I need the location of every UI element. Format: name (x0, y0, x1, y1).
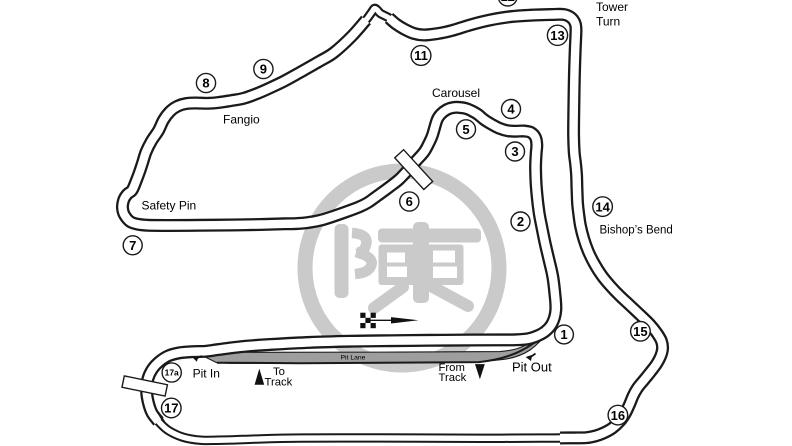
svg-text:8: 8 (202, 76, 209, 91)
svg-text:Pit Lane: Pit Lane (341, 355, 366, 362)
svg-text:17a: 17a (165, 368, 179, 378)
svg-text:16: 16 (611, 408, 625, 423)
svg-text:17: 17 (164, 401, 178, 416)
svg-text:Carousel: Carousel (432, 86, 480, 100)
svg-text:4: 4 (507, 102, 515, 117)
svg-text:Pit Out: Pit Out (512, 360, 552, 375)
svg-text:Bishop’s Bend: Bishop’s Bend (600, 225, 673, 237)
svg-text:5: 5 (462, 122, 469, 137)
svg-text:2: 2 (517, 214, 524, 229)
svg-text:7: 7 (129, 238, 136, 253)
svg-text:12: 12 (500, 0, 514, 4)
svg-text:13: 13 (550, 28, 564, 43)
svg-text:9: 9 (260, 62, 267, 77)
svg-text:15: 15 (633, 324, 647, 339)
svg-text:Safety Pin: Safety Pin (142, 199, 197, 213)
svg-text:Pit In: Pit In (193, 367, 220, 381)
svg-text:Track: Track (439, 372, 467, 384)
svg-text:14: 14 (595, 199, 610, 214)
svg-text:Tower: Tower (596, 0, 628, 14)
svg-text:6: 6 (406, 194, 413, 209)
svg-text:11: 11 (414, 48, 428, 63)
svg-text:Track: Track (265, 376, 293, 388)
svg-text:Fangio: Fangio (223, 113, 260, 127)
svg-text:3: 3 (511, 144, 518, 159)
svg-text:1: 1 (560, 327, 567, 342)
svg-text:Turn: Turn (596, 14, 620, 28)
